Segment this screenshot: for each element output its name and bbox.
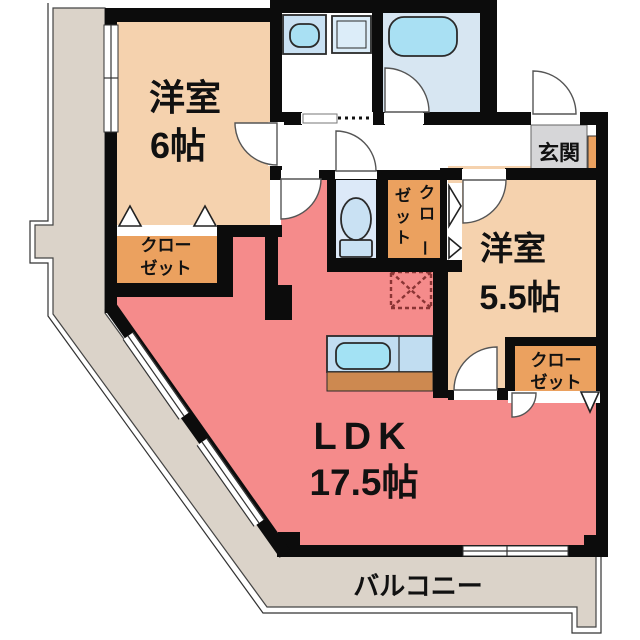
label-balcony: バルコニー	[353, 571, 482, 601]
wall-entrance-bottom	[505, 168, 608, 180]
wall-ldk-bedroom55-divider	[433, 262, 448, 398]
wall-bath-right	[480, 0, 497, 125]
bathtub	[389, 17, 457, 56]
washbasin-bowl	[290, 24, 319, 47]
accordion-door-washroom	[301, 113, 373, 124]
opening-bathroom	[384, 113, 424, 124]
label-closet55-line1: クロー	[531, 351, 582, 370]
opening-toilet	[335, 171, 377, 179]
opening-bedroom55-top	[462, 169, 506, 180]
wall-closet-hall-right	[440, 168, 447, 262]
wall-bedroom55-top-post	[447, 168, 463, 180]
wall-top-right	[270, 0, 497, 13]
label-closet6-line2: ゼット	[141, 258, 192, 278]
label-entrance: 玄関	[538, 141, 580, 165]
label-closet-hall-col-left: ゼット	[395, 186, 411, 247]
wall-toilet-right	[376, 179, 388, 258]
label-bedroom6-name: 洋室	[149, 77, 221, 118]
closet-hall-folding-door	[447, 183, 462, 260]
opening-ldk	[281, 170, 319, 179]
label-ldk-name: LDK	[313, 416, 412, 458]
wall-hall-top	[423, 112, 531, 125]
wall-closet55-top	[505, 337, 600, 346]
wall-corner-br	[584, 535, 608, 557]
floor-plan: 洋室 6帖 洋室 5.5帖 LDK 17.5帖 玄関 バルコニー クロー ゼット…	[0, 0, 640, 640]
floor-plan-svg: 洋室 6帖 洋室 5.5帖 LDK 17.5帖 玄関 バルコニー クロー ゼット…	[0, 0, 640, 640]
label-bedroom6-size: 6帖	[150, 125, 206, 166]
label-bedroom55-size: 5.5帖	[479, 279, 560, 317]
window-bedroom6-left	[104, 25, 118, 132]
washing-machine-pan	[332, 16, 371, 53]
label-bedroom55-name: 洋室	[480, 230, 546, 267]
wall-top-left	[105, 8, 282, 22]
wall-washroom-bottom-m	[373, 112, 385, 125]
toilet	[341, 198, 371, 240]
kitchen-base	[327, 372, 433, 391]
label-closet6-line1: クロー	[141, 236, 192, 255]
label-closet55-line2: ゼット	[531, 372, 582, 392]
wall-closet6-bottom	[105, 283, 233, 297]
toilet-tank	[340, 240, 372, 257]
window-ldk-bottom	[463, 546, 568, 556]
wall-toilet-left	[327, 179, 336, 258]
wall-bath-left	[372, 0, 383, 112]
wall-bedroom55-bottom-l	[448, 390, 455, 400]
kitchen-sink	[336, 343, 390, 369]
label-ldk-size: 17.5帖	[309, 462, 418, 503]
wall-right	[596, 112, 608, 557]
opening-bedroom55-bottom	[454, 390, 497, 400]
